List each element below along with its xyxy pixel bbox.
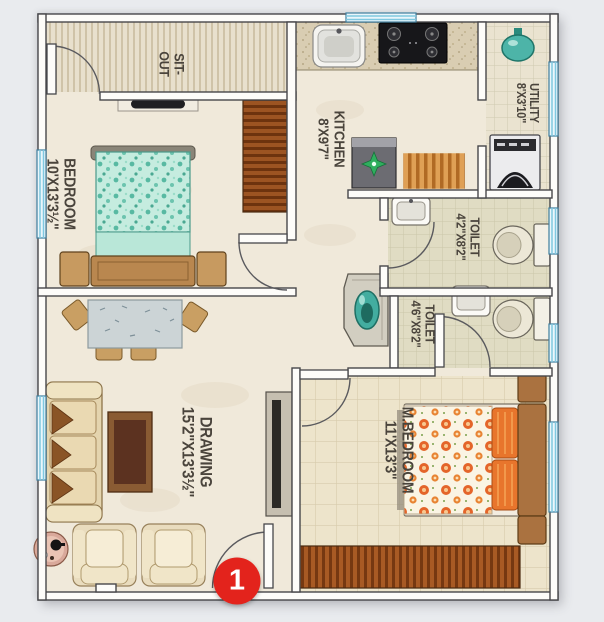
wall-master-left — [292, 368, 300, 592]
wall-master-top-right — [490, 368, 552, 376]
room-dims: 4'6"X8'2" — [409, 301, 423, 348]
wall-bedroom-bottom — [38, 288, 296, 296]
room-label-utility: UTILITY 8'X3'10" — [514, 83, 540, 123]
wall-utility-left-upper — [478, 22, 486, 100]
armchair-right — [142, 524, 205, 586]
bedroom-nightstand-left — [60, 252, 89, 286]
toilet-bottom-wc — [493, 298, 550, 340]
wall-utility-left-lower — [478, 146, 486, 198]
room-label-kitchen: KITCHEN 8'X9'7" — [315, 111, 346, 168]
room-dims: 10'X13'3½" — [43, 158, 60, 230]
gas-stove — [379, 23, 447, 63]
window-drawing-left — [37, 396, 46, 480]
room-label-toilet-top: TOILET 4'2"X8'2" — [454, 214, 481, 261]
room-name: KITCHEN — [331, 111, 347, 168]
wall-toilet-top-left-upper — [380, 198, 388, 220]
wall-toilet-top-left-lower — [380, 266, 388, 290]
room-label-toilet-bottom: TOILET 4'6"X8'2" — [409, 301, 436, 348]
wall-outer-left — [38, 14, 46, 600]
window-utility-right — [549, 62, 558, 136]
room-name-2: OUT — [157, 51, 172, 76]
room-dims: 11'X13'3" — [381, 407, 398, 494]
master-nightstand-bottom — [518, 516, 546, 544]
wall-sitout-bottom — [100, 92, 296, 100]
master-wardrobe — [300, 546, 520, 588]
room-dims: 15'2"X13'3½" — [179, 407, 197, 498]
toilet-top-wc — [493, 224, 550, 266]
coffee-table — [108, 412, 152, 492]
room-label-sitout: SIT- OUT — [157, 51, 186, 76]
wall-toilet-bottom-left — [390, 296, 398, 368]
room-label-bedroom: BEDROOM 10'X13'3½" — [43, 158, 76, 230]
kitchen-appliance — [352, 138, 396, 188]
room-dims: 8'X3'10" — [514, 83, 527, 123]
wall-outer-top — [38, 14, 558, 22]
window-toilet-top-right — [549, 208, 558, 254]
floor-plan: SIT- OUT BEDROOM 10'X13'3½" KITCHEN 8'X9… — [0, 0, 604, 622]
window-kitchen-top — [346, 13, 416, 22]
room-name: BEDROOM — [60, 158, 77, 230]
room-name: TOILET — [468, 214, 482, 261]
room-dims: 4'2"X8'2" — [454, 214, 468, 261]
master-nightstand-top — [518, 374, 546, 402]
room-name: SIT- — [172, 51, 187, 76]
toilet-top-washbasin — [392, 197, 430, 225]
room-label-drawing: DRAWING 15'2"X13'3½" — [179, 407, 214, 498]
bedroom-nightstand-right — [197, 252, 226, 286]
tv-unit — [266, 392, 292, 516]
wall-kitchen-bottom — [348, 190, 552, 198]
entrance-marker-label: 1 — [229, 565, 245, 598]
room-name: UTILITY — [527, 83, 540, 123]
wall-outer-bottom — [38, 592, 558, 600]
sofa — [46, 382, 102, 522]
room-label-master-bedroom: M.BEDROOM 11'X13'3" — [381, 407, 414, 494]
window-master-right — [549, 422, 558, 512]
room-dims: 8'X9'7" — [315, 111, 331, 168]
wall-toilet-separator — [380, 288, 552, 296]
kitchen-sink — [313, 25, 365, 67]
entrance-marker-badge: 1 — [214, 558, 261, 605]
room-name: M.BEDROOM — [398, 407, 415, 494]
wall-column — [96, 584, 116, 592]
window-toilet-bottom-right — [549, 324, 558, 362]
armchair-left — [73, 524, 136, 586]
wall-master-top-left — [348, 368, 435, 376]
bedroom-wardrobe — [243, 100, 287, 212]
washing-machine — [490, 135, 540, 190]
kitchen-cabinet — [402, 152, 466, 190]
room-name: TOILET — [423, 301, 437, 348]
room-name: DRAWING — [197, 407, 215, 498]
wall-mid-vertical — [287, 22, 296, 240]
